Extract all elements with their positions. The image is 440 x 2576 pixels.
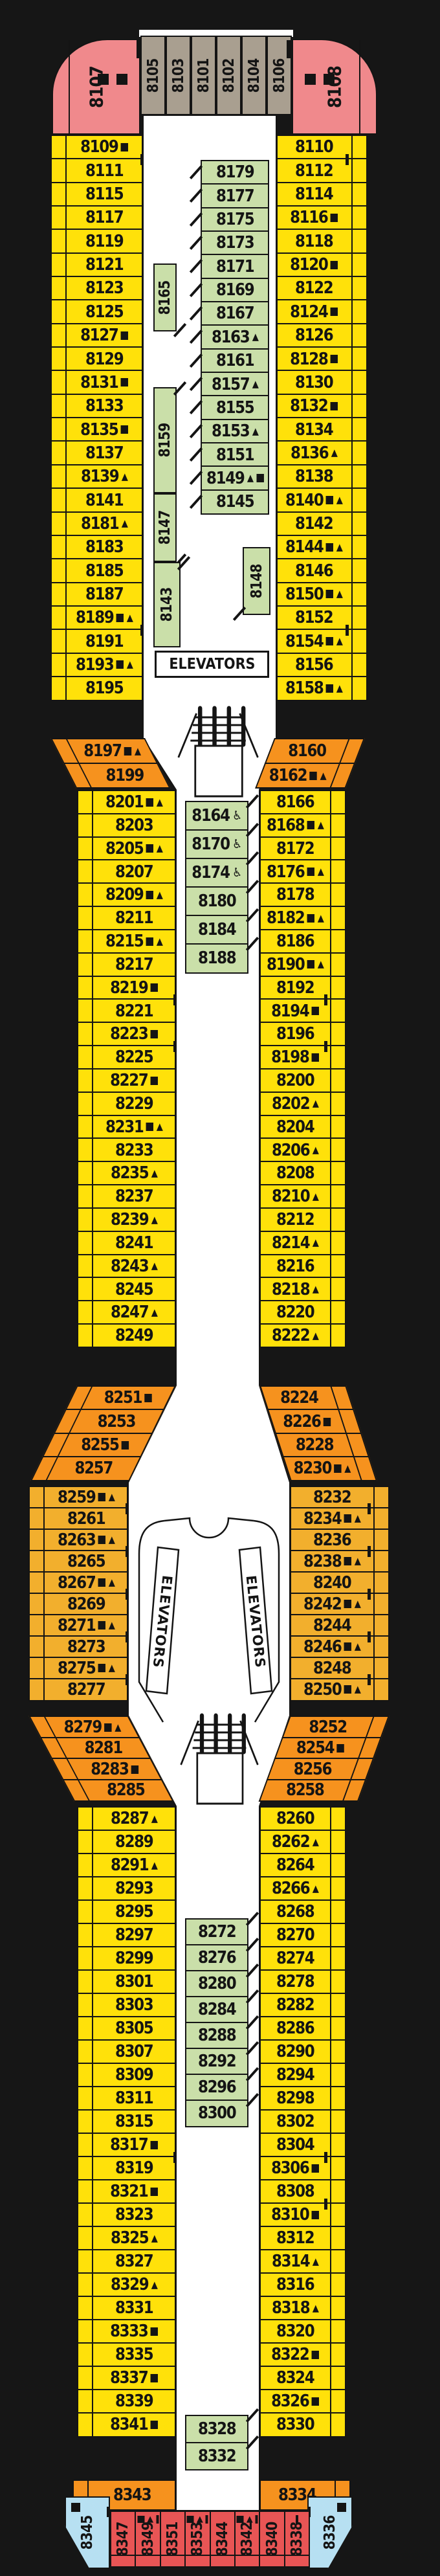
cabin-8182: 8182▲ bbox=[259, 906, 346, 930]
column-green-aft2: 83288332 bbox=[185, 2415, 248, 2470]
cabin-number: 8226 bbox=[283, 1412, 320, 1431]
cabin-number: 8158 bbox=[285, 678, 323, 698]
cabin-label: 8206▲ bbox=[272, 1141, 319, 1160]
cabin-8247: 8247▲ bbox=[77, 1300, 176, 1325]
cabin-8299: 8299 bbox=[77, 1946, 176, 1971]
cabin-number: 8271 bbox=[58, 1616, 95, 1635]
sofa-bed-square-icon bbox=[326, 684, 333, 693]
cabin-8129: 8129 bbox=[50, 346, 143, 372]
cabin-number: 8253 bbox=[98, 1412, 135, 1431]
cabin-number: 8167 bbox=[216, 304, 254, 323]
sofa-bed-square-icon bbox=[122, 1440, 129, 1449]
cabin-label: 8171 bbox=[216, 257, 254, 276]
cabin-number: 8104 bbox=[246, 58, 263, 93]
upper-berth-triangle-icon: ▲ bbox=[252, 379, 258, 389]
cabin-8135: 8135 bbox=[50, 417, 143, 442]
cabin-number: 8259 bbox=[58, 1488, 95, 1507]
connecting-cabin-tick-icon bbox=[126, 1503, 129, 1514]
cabin-label: 8170♿ bbox=[192, 834, 242, 854]
cabin-label: 8188 bbox=[198, 948, 236, 968]
sofa-bed-square-icon bbox=[71, 2503, 80, 2512]
sofa-bed-square-icon bbox=[344, 1557, 351, 1565]
cabin-8311: 8311 bbox=[77, 2086, 176, 2111]
cabin-8260: 8260 bbox=[259, 1806, 346, 1831]
cabin-8155: 8155 bbox=[201, 395, 269, 420]
cabin-label: 8343 bbox=[113, 2485, 151, 2505]
cabin-8168: 8168▲ bbox=[259, 813, 346, 838]
cabin-number: 8148 bbox=[248, 564, 265, 598]
upper-berth-triangle-icon: ▲ bbox=[247, 473, 253, 483]
cabin-8180: 8180 bbox=[185, 886, 248, 917]
cabin-number: 8274 bbox=[276, 1949, 314, 1968]
cabin-number: 8238 bbox=[303, 1552, 341, 1571]
cabin-number: 8223 bbox=[110, 1024, 148, 1044]
cabin-8253: 8253 bbox=[53, 1409, 164, 1434]
cabin-label: 8284 bbox=[198, 2000, 236, 2019]
cabin-number: 8347 bbox=[115, 2522, 131, 2557]
cabin-8191: 8191 bbox=[50, 629, 143, 654]
connecting-cabin-tick-icon bbox=[368, 1503, 371, 1514]
cabin-label: 8112 bbox=[295, 161, 333, 181]
cabin-8251: 8251 bbox=[65, 1385, 176, 1411]
cabin-8204: 8204 bbox=[259, 1115, 346, 1139]
upper-berth-triangle-icon: ▲ bbox=[134, 746, 140, 756]
cabin-8177: 8177 bbox=[201, 183, 269, 208]
upper-berth-triangle-icon: ▲ bbox=[336, 684, 343, 693]
sofa-bed-square-icon bbox=[124, 747, 131, 756]
sofa-bed-square-icon bbox=[116, 74, 127, 85]
sofa-bed-square-icon bbox=[146, 798, 153, 807]
upper-berth-triangle-icon: ▲ bbox=[354, 1556, 360, 1566]
sofa-bed-square-icon bbox=[256, 474, 263, 482]
upper-berth-triangle-icon: ▲ bbox=[344, 1464, 351, 1473]
cabin-8149: 8149▲ bbox=[201, 465, 269, 491]
cabin-number: 8194 bbox=[271, 1002, 309, 1021]
cabin-8134: 8134 bbox=[276, 417, 368, 442]
sofa-bed-square-icon bbox=[146, 937, 153, 946]
cabin-label: 8323 bbox=[115, 2205, 153, 2224]
cabin-8301: 8301 bbox=[77, 1969, 176, 1995]
cabin-label: 8272 bbox=[198, 1922, 236, 1942]
upper-berth-triangle-icon: ▲ bbox=[312, 1284, 318, 1294]
cabin-number: 8315 bbox=[115, 2112, 153, 2131]
cabin-8146: 8146 bbox=[276, 558, 368, 583]
cabin-8314: 8314▲ bbox=[259, 2249, 346, 2274]
cabin-label: 8212 bbox=[276, 1210, 314, 1229]
cabin-8337: 8337 bbox=[77, 2366, 176, 2391]
cabin-number: 8231 bbox=[105, 1117, 143, 1137]
cabin-8137: 8137 bbox=[50, 440, 143, 465]
cabin-label: 8293 bbox=[115, 1879, 153, 1898]
cabin-label: 8295 bbox=[115, 1902, 153, 1921]
cabin-8102: 8102 bbox=[216, 36, 241, 115]
cabin-number: 8152 bbox=[295, 608, 333, 627]
connecting-cabin-tick-icon bbox=[173, 994, 177, 1005]
cabin-label: 8281 bbox=[84, 1738, 122, 1758]
cabin-label: 8325▲ bbox=[111, 2228, 158, 2248]
cabin-label: 8234▲ bbox=[303, 1509, 361, 1529]
upper-berth-triangle-icon: ▲ bbox=[151, 1861, 158, 1870]
cabin-number: 8185 bbox=[85, 561, 123, 581]
cabin-number: 8281 bbox=[84, 1738, 122, 1758]
cabin-label: 8116 bbox=[290, 208, 338, 227]
cabin-label: 8134 bbox=[295, 420, 333, 440]
cabin-8159: 8159 bbox=[153, 387, 177, 493]
cabin-label: 8176▲ bbox=[267, 862, 324, 882]
sofa-bed-square-icon bbox=[151, 983, 158, 992]
cabin-8305: 8305 bbox=[77, 2016, 176, 2041]
cabin-label: 8161 bbox=[216, 351, 254, 370]
cabin-number: 8179 bbox=[216, 162, 254, 182]
cabin-8326: 8326 bbox=[259, 2389, 346, 2414]
cabin-number: 8294 bbox=[276, 2065, 314, 2085]
cabin-8188: 8188 bbox=[185, 943, 248, 974]
cabin-8282: 8282 bbox=[259, 1993, 346, 2018]
cabin-label: 8233 bbox=[115, 1141, 153, 1160]
cabin-label: 8196 bbox=[276, 1024, 314, 1044]
cabin-label: 8288 bbox=[198, 2026, 236, 2045]
cabin-8263: 8263▲ bbox=[28, 1529, 128, 1552]
cabin-label: 8124 bbox=[290, 302, 338, 322]
cabin-8325: 8325▲ bbox=[77, 2226, 176, 2251]
cabin-8321: 8321 bbox=[77, 2179, 176, 2204]
cabin-8151: 8151 bbox=[201, 442, 269, 467]
cabin-symbols: ▲ bbox=[237, 2515, 258, 2524]
cabin-8296: 8296 bbox=[185, 2074, 248, 2101]
upper-berth-triangle-icon: ▲ bbox=[108, 1535, 115, 1545]
cabin-8117: 8117 bbox=[50, 205, 143, 230]
cabin-label: 8237 bbox=[115, 1187, 153, 1206]
cabin-number: 8106 bbox=[271, 58, 288, 93]
cabin-8207: 8207 bbox=[77, 859, 176, 884]
cabin-8143: 8143 bbox=[153, 562, 181, 647]
connecting-cabin-tick-icon bbox=[140, 154, 144, 165]
cabin-label: 8266▲ bbox=[272, 1879, 319, 1898]
cabin-label: 8231▲ bbox=[105, 1117, 163, 1137]
cabin-number: 8247 bbox=[111, 1303, 148, 1322]
cabin-number: 8183 bbox=[85, 537, 123, 557]
cabin-number: 8237 bbox=[115, 1187, 153, 1206]
cabin-number: 8269 bbox=[67, 1595, 105, 1614]
cabin-label: 8191 bbox=[85, 632, 123, 651]
cabin-8271: 8271▲ bbox=[28, 1614, 128, 1637]
upper-berth-triangle-icon: ▲ bbox=[108, 1578, 115, 1587]
cabin-label: 8273 bbox=[67, 1637, 105, 1657]
upper-berth-triangle-icon: ▲ bbox=[252, 332, 258, 342]
cabin-8216: 8216 bbox=[259, 1254, 346, 1279]
cabin-label: 8224 bbox=[280, 1388, 318, 1407]
cabin-8329: 8329▲ bbox=[77, 2272, 176, 2298]
cabin-number: 8165 bbox=[157, 280, 173, 315]
cabin-number: 8127 bbox=[80, 326, 118, 345]
connecting-cabin-tick-icon bbox=[173, 2152, 177, 2163]
cabin-number: 8327 bbox=[115, 2252, 153, 2271]
cabin-label: 8199 bbox=[105, 766, 143, 785]
cabin-8167: 8167 bbox=[201, 301, 269, 326]
column-mid-left: 8201▲82038205▲82078209▲82118215▲82178219… bbox=[77, 790, 176, 1348]
cabin-8176: 8176▲ bbox=[259, 859, 346, 884]
cabin-8181: 8181▲ bbox=[50, 511, 143, 537]
cabin-number: 8168 bbox=[267, 816, 304, 835]
cabin-8315: 8315 bbox=[77, 2109, 176, 2134]
cabin-number: 8114 bbox=[295, 185, 333, 204]
cabin-label: 8312 bbox=[276, 2228, 314, 2248]
sofa-bed-square-icon bbox=[187, 2516, 194, 2523]
cabin-label: 8219 bbox=[110, 978, 158, 998]
cabin-8283: 8283 bbox=[51, 1758, 163, 1780]
sofa-bed-square-icon bbox=[146, 891, 153, 899]
column-midship-right: 82328234▲82368238▲82408242▲82448246▲8248… bbox=[290, 1486, 390, 1701]
cabin-number: 8206 bbox=[272, 1141, 309, 1160]
cabin-number: 8275 bbox=[58, 1659, 95, 1678]
cabin-label: 8137 bbox=[85, 443, 123, 463]
cabin-8245: 8245 bbox=[77, 1277, 176, 1301]
sofa-bed-square-icon bbox=[324, 74, 335, 85]
connecting-cabin-tick-icon bbox=[156, 2515, 159, 2524]
cabin-label: 8226 bbox=[283, 1412, 331, 1431]
bulkhead-tick-icon bbox=[137, 40, 142, 58]
bulkhead-tick-icon bbox=[287, 40, 292, 58]
cabin-8105: 8105 bbox=[140, 36, 166, 115]
cabin-label: 8223 bbox=[110, 1024, 158, 1044]
cabin-8165: 8165 bbox=[153, 263, 177, 331]
cabin-label: 8316 bbox=[276, 2275, 314, 2294]
cabin-8173: 8173 bbox=[201, 230, 269, 256]
cabin-8274: 8274 bbox=[259, 1946, 346, 1971]
cabin-number: 8103 bbox=[170, 58, 187, 93]
cabin-label: 8130 bbox=[295, 373, 333, 392]
upper-berth-triangle-icon: ▲ bbox=[354, 1685, 360, 1694]
sofa-bed-square-icon bbox=[307, 868, 314, 876]
upper-berth-triangle-icon: ▲ bbox=[336, 636, 343, 646]
cabin-number: 8175 bbox=[216, 210, 254, 229]
cabin-number: 8161 bbox=[216, 351, 254, 370]
cabin-number: 8301 bbox=[115, 1972, 153, 1991]
cabin-8244: 8244 bbox=[290, 1614, 390, 1637]
cabin-number: 8268 bbox=[276, 1902, 314, 1921]
cabin-8318: 8318▲ bbox=[259, 2296, 346, 2321]
cabin-number: 8343 bbox=[113, 2485, 151, 2505]
cabin-label: 8111 bbox=[85, 161, 123, 181]
cabin-8275: 8275▲ bbox=[28, 1657, 128, 1680]
cabin-label: 8217 bbox=[115, 955, 153, 974]
sofa-bed-square-icon bbox=[344, 1685, 351, 1694]
cabin-8147: 8147 bbox=[153, 493, 177, 562]
upper-berth-triangle-icon: ▲ bbox=[157, 1122, 163, 1132]
cabin-number: 8330 bbox=[276, 2415, 314, 2434]
cabin-label: 8304 bbox=[276, 2135, 314, 2155]
cabin-8212: 8212 bbox=[259, 1207, 346, 1232]
cabin-label: 8311 bbox=[115, 2089, 153, 2108]
cabin-8138: 8138 bbox=[276, 464, 368, 489]
cabin-label: 8254 bbox=[296, 1738, 344, 1758]
cabin-label: 8152 bbox=[295, 608, 333, 627]
upper-berth-triangle-icon: ▲ bbox=[197, 2515, 203, 2524]
cabin-8284: 8284 bbox=[185, 1996, 248, 2024]
cabin-number: 8136 bbox=[291, 443, 328, 463]
connecting-cabin-tick-icon bbox=[126, 1546, 129, 1557]
cabin-number: 8351 bbox=[164, 2522, 181, 2557]
cabin-number: 8240 bbox=[313, 1573, 351, 1593]
cabin-8248: 8248 bbox=[290, 1657, 390, 1680]
cabin-number: 8139 bbox=[81, 467, 118, 486]
upper-berth-triangle-icon: ▲ bbox=[317, 867, 324, 877]
cabin-number: 8153 bbox=[212, 421, 249, 441]
cabin-8118: 8118 bbox=[276, 229, 368, 254]
cabin-label: 8110 bbox=[295, 137, 333, 157]
cabin-number: 8111 bbox=[85, 161, 123, 181]
column-green-aft: 82728276828082848288829282968300 bbox=[185, 1918, 248, 2127]
upper-berth-triangle-icon: ▲ bbox=[147, 2515, 153, 2524]
cabin-number: 8283 bbox=[91, 1760, 128, 1779]
cabin-number: 8145 bbox=[216, 492, 254, 511]
cabin-number: 8309 bbox=[115, 2065, 153, 2085]
upper-berth-triangle-icon: ▲ bbox=[317, 820, 324, 830]
cabin-label: 8186 bbox=[276, 932, 314, 951]
upper-berth-triangle-icon: ▲ bbox=[252, 427, 258, 436]
cabin-8268: 8268 bbox=[259, 1899, 346, 1925]
connecting-cabin-tick-icon bbox=[324, 2152, 327, 2163]
balcony-strip bbox=[359, 40, 376, 133]
cabin-label: 8287▲ bbox=[111, 1809, 158, 1828]
cabin-number: 8207 bbox=[115, 862, 153, 882]
cabin-number: 8277 bbox=[67, 1680, 105, 1699]
cabin-8257: 8257 bbox=[30, 1456, 142, 1481]
cabin-number: 8187 bbox=[85, 585, 123, 604]
cabin-label: 8278 bbox=[276, 1972, 314, 1991]
cabin-number: 8324 bbox=[276, 2368, 314, 2388]
cabin-number: 8180 bbox=[198, 891, 236, 911]
cabin-number: 8211 bbox=[115, 908, 153, 928]
cabin-number: 8204 bbox=[276, 1117, 314, 1137]
cabin-label: 8294 bbox=[276, 2065, 314, 2085]
cabin-8327: 8327 bbox=[77, 2249, 176, 2274]
cabin-number: 8332 bbox=[198, 2447, 236, 2466]
cabin-label: 8166 bbox=[276, 792, 314, 812]
cabin-8286: 8286 bbox=[259, 2016, 346, 2041]
cabin-number: 8163 bbox=[212, 328, 249, 347]
cabin-number: 8250 bbox=[303, 1680, 341, 1699]
cabin-label: 8131 bbox=[80, 373, 128, 392]
cabin-number: 8133 bbox=[85, 396, 123, 416]
cabin-8199: 8199 bbox=[63, 763, 170, 789]
cabin-number: 8246 bbox=[303, 1637, 341, 1657]
cabin-label: 8339 bbox=[115, 2391, 153, 2411]
sofa-bed-square-icon bbox=[312, 2397, 319, 2406]
cabin-label: 8155 bbox=[216, 398, 254, 418]
cabin-number: 8256 bbox=[294, 1760, 331, 1779]
cabin-8115: 8115 bbox=[50, 182, 143, 207]
cabin-number: 8123 bbox=[85, 278, 123, 298]
cabin-label: 8308 bbox=[276, 2182, 314, 2201]
cabin-number: 8173 bbox=[216, 233, 254, 252]
sofa-bed-square-icon bbox=[344, 1514, 351, 1523]
cabin-label: 8260 bbox=[276, 1809, 314, 1828]
cabin-8122: 8122 bbox=[276, 276, 368, 301]
sofa-bed-square-icon bbox=[326, 637, 333, 645]
cabin-number: 8251 bbox=[104, 1388, 142, 1407]
cabin-8142: 8142 bbox=[276, 511, 368, 537]
cabin-label: 8280 bbox=[198, 1974, 236, 1993]
cabin-label: 8142 bbox=[295, 514, 333, 533]
cabin-8170: 8170♿ bbox=[185, 829, 248, 860]
cabin-label: 8204 bbox=[276, 1117, 314, 1137]
cabin-label: 8153▲ bbox=[212, 421, 259, 441]
cabin-label: 8169 bbox=[216, 280, 254, 300]
cabin-label: 8136▲ bbox=[291, 443, 338, 463]
cabin-number: 8323 bbox=[115, 2205, 153, 2224]
cabin-number: 8353 bbox=[189, 2522, 206, 2557]
cabin-8347: 8347 bbox=[110, 2511, 136, 2568]
cabin-label: 8251 bbox=[104, 1388, 152, 1407]
cabin-label: 8125 bbox=[85, 302, 123, 322]
cabin-number: 8143 bbox=[159, 588, 175, 622]
sofa-bed-square-icon bbox=[145, 1394, 152, 1402]
cabin-8292: 8292 bbox=[185, 2048, 248, 2076]
cabin-number: 8156 bbox=[295, 655, 333, 675]
cabin-label: 8211 bbox=[115, 908, 153, 928]
cabin-label: 8246▲ bbox=[303, 1637, 361, 1657]
cabin-number: 8295 bbox=[115, 1902, 153, 1921]
cabin-label: 8290 bbox=[276, 2042, 314, 2061]
cabin-label: 8168▲ bbox=[267, 816, 324, 835]
cabin-number: 8344 bbox=[214, 2522, 231, 2557]
cabin-number: 8249 bbox=[115, 1326, 153, 1345]
cabin-number: 8110 bbox=[295, 137, 333, 157]
cabin-8279: 8279▲ bbox=[28, 1716, 140, 1738]
cabin-8249: 8249 bbox=[77, 1323, 176, 1348]
cabin-label: 8326 bbox=[271, 2391, 319, 2411]
cabin-number: 8151 bbox=[216, 445, 254, 465]
cabin-label: 8239▲ bbox=[111, 1210, 158, 1229]
cabin-8243: 8243▲ bbox=[77, 1254, 176, 1279]
cabin-number: 8190 bbox=[267, 955, 304, 974]
cabin-label: 8117 bbox=[85, 208, 123, 227]
cabin-8196: 8196 bbox=[259, 1022, 346, 1046]
cabin-8237: 8237 bbox=[77, 1184, 176, 1209]
cabin-8287: 8287▲ bbox=[77, 1806, 176, 1831]
cabin-8323: 8323 bbox=[77, 2202, 176, 2228]
cabin-number: 8337 bbox=[110, 2368, 148, 2388]
cabin-8339: 8339 bbox=[77, 2389, 176, 2414]
cabin-label: 8291▲ bbox=[111, 1855, 158, 1875]
cabin-number: 8236 bbox=[313, 1530, 351, 1550]
connecting-cabin-tick-icon bbox=[346, 154, 349, 165]
cabin-number: 8312 bbox=[276, 2228, 314, 2248]
cabin-label: 8296 bbox=[198, 2078, 236, 2097]
cabin-8166: 8166 bbox=[259, 790, 346, 814]
cabin-label: 8181▲ bbox=[81, 514, 128, 533]
cabin-label: 8218▲ bbox=[272, 1280, 319, 1299]
sofa-bed-square-icon bbox=[151, 2421, 158, 2429]
cabin-8125: 8125 bbox=[50, 299, 143, 324]
cabin-label: 8126 bbox=[295, 326, 333, 345]
cabin-8190: 8190▲ bbox=[259, 952, 346, 977]
cabin-label: 8149▲ bbox=[206, 469, 264, 488]
cabin-number: 8255 bbox=[82, 1435, 119, 1455]
sofa-bed-square-icon bbox=[312, 2211, 319, 2219]
cabin-8335: 8335 bbox=[77, 2342, 176, 2368]
cabin-8317: 8317 bbox=[77, 2133, 176, 2158]
cabin-8107: 8107 bbox=[52, 39, 140, 135]
cabin-8266: 8266▲ bbox=[259, 1876, 346, 1901]
cabin-label: 8341 bbox=[110, 2415, 158, 2434]
cabin-8103: 8103 bbox=[166, 36, 191, 115]
cabin-label: 8245 bbox=[115, 1280, 153, 1299]
cabin-number: 8162 bbox=[269, 766, 307, 785]
upper-berth-triangle-icon: ▲ bbox=[354, 1514, 360, 1523]
cabin-number: 8290 bbox=[276, 2042, 314, 2061]
